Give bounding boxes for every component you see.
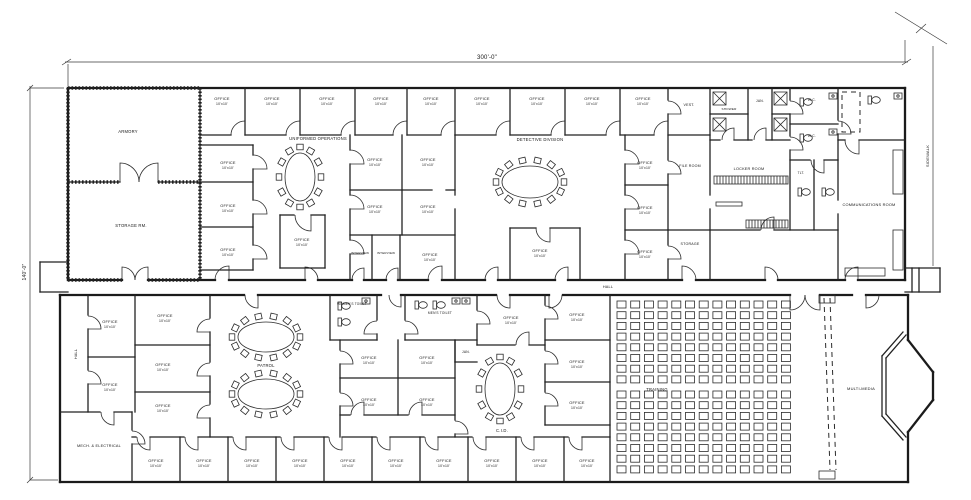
chair xyxy=(768,312,777,319)
chair xyxy=(557,168,565,176)
chair xyxy=(485,413,493,421)
chair xyxy=(644,391,653,398)
chair xyxy=(727,322,736,329)
chair xyxy=(617,322,626,329)
door-swing xyxy=(521,437,534,450)
door-swing xyxy=(441,121,455,135)
chair xyxy=(229,334,235,340)
chair xyxy=(658,322,667,329)
chair xyxy=(658,423,667,430)
chair xyxy=(713,322,722,329)
room-label-office: OFFICE xyxy=(532,458,548,463)
chair xyxy=(293,399,301,407)
chair xyxy=(781,391,790,398)
chair xyxy=(713,466,722,473)
chair xyxy=(644,376,653,383)
door-swing xyxy=(295,215,311,231)
chair xyxy=(699,312,708,319)
room-label-office: OFFICE xyxy=(419,355,435,360)
chair xyxy=(644,365,653,372)
chair xyxy=(713,344,722,351)
chair xyxy=(699,355,708,362)
chair xyxy=(241,316,249,324)
room-label: W.C. xyxy=(808,98,816,102)
chair xyxy=(754,312,763,319)
dimension-label: 140'-0" xyxy=(22,264,28,281)
chair xyxy=(644,333,653,340)
chair xyxy=(727,402,736,409)
chair xyxy=(781,455,790,462)
room-label-office: OFFICE xyxy=(584,96,600,101)
chair xyxy=(644,412,653,419)
chair xyxy=(699,423,708,430)
chair xyxy=(617,466,626,473)
door-swing xyxy=(790,295,805,310)
chair xyxy=(617,402,626,409)
door-swing xyxy=(606,121,620,135)
room-label: INTERVIEW xyxy=(377,251,395,255)
chair xyxy=(547,195,555,203)
chair xyxy=(699,376,708,383)
conference-table xyxy=(493,157,567,207)
chair xyxy=(727,455,736,462)
chair xyxy=(781,412,790,419)
room-label-office: OFFICE xyxy=(532,248,548,253)
room-size-label: 10'x10' xyxy=(571,318,583,322)
room-size-label: 10'x10' xyxy=(581,464,593,468)
chair xyxy=(699,412,708,419)
door-swing xyxy=(120,163,139,182)
chair xyxy=(478,401,486,409)
chair xyxy=(727,355,736,362)
chair xyxy=(672,455,681,462)
room-size-label: 10'x10' xyxy=(639,166,651,170)
chair xyxy=(781,402,790,409)
chair xyxy=(255,354,262,361)
chair xyxy=(768,434,777,441)
chair xyxy=(306,199,314,207)
chair xyxy=(768,365,777,372)
conference-table xyxy=(276,144,324,210)
chair xyxy=(686,402,695,409)
chair xyxy=(699,455,708,462)
door-swing xyxy=(122,267,135,280)
chair xyxy=(497,354,503,360)
chair xyxy=(768,412,777,419)
chair xyxy=(561,179,567,185)
chair xyxy=(686,355,695,362)
chair xyxy=(644,445,653,452)
door-swing xyxy=(341,121,355,135)
door-swing xyxy=(811,160,824,173)
chair xyxy=(514,369,522,377)
chair xyxy=(617,355,626,362)
door-swing xyxy=(197,363,210,376)
chair xyxy=(686,344,695,351)
room-label: FILE ROOM xyxy=(679,164,701,168)
chair xyxy=(617,301,626,308)
room-label: VEST. xyxy=(684,103,695,107)
chair xyxy=(514,401,522,409)
chair xyxy=(781,434,790,441)
room-size-label: 10'x10' xyxy=(422,210,434,214)
toilet xyxy=(415,301,427,309)
room-size-label: 10'x10' xyxy=(150,464,162,468)
chair xyxy=(699,402,708,409)
chair xyxy=(768,355,777,362)
room-label-office: OFFICE xyxy=(361,355,377,360)
dimension-label: 300'-0" xyxy=(477,55,497,61)
room-label: MECH. & ELECTRICAL xyxy=(77,444,121,448)
room-size-label: 10'x10' xyxy=(486,464,498,468)
sink xyxy=(829,93,837,99)
folding-partition xyxy=(824,298,830,470)
room-label-office: OFFICE xyxy=(148,458,164,463)
door-swing xyxy=(389,295,401,307)
door-swing xyxy=(845,267,858,280)
chair xyxy=(686,412,695,419)
door-swing xyxy=(545,306,558,319)
chair xyxy=(740,391,749,398)
room-label-office: OFFICE xyxy=(419,397,435,402)
door-swing xyxy=(845,140,859,154)
door-swing xyxy=(866,295,879,308)
chair xyxy=(672,333,681,340)
chair xyxy=(781,312,790,319)
toilet xyxy=(338,318,350,326)
chair xyxy=(644,423,653,430)
chair xyxy=(672,376,681,383)
equipment xyxy=(716,202,742,206)
room-label: COMMUNICATIONS ROOM xyxy=(842,202,895,207)
chair xyxy=(768,455,777,462)
chair xyxy=(713,455,722,462)
room-size-label: 10'x10' xyxy=(222,209,234,213)
chair xyxy=(293,381,301,389)
door-swing xyxy=(245,295,258,308)
room-size-label: 10'x10' xyxy=(104,388,116,392)
chair xyxy=(231,399,239,407)
room-size-label: 10'x10' xyxy=(375,102,387,106)
room-label-office: OFFICE xyxy=(292,458,308,463)
room-size-label: 10'x10' xyxy=(296,243,308,247)
chair xyxy=(241,349,249,357)
door-swing xyxy=(197,405,210,418)
chair xyxy=(478,369,486,377)
chair xyxy=(713,423,722,430)
room-label-office: OFFICE xyxy=(637,160,653,165)
room-size-label: 10'x10' xyxy=(159,319,171,323)
room-size-label: 10'x10' xyxy=(266,102,278,106)
room-label: JAN. xyxy=(756,99,764,103)
lockers xyxy=(746,220,788,228)
door-swing xyxy=(473,437,486,450)
room-label: TRAINING xyxy=(646,387,668,392)
room-size-label: 10'x10' xyxy=(363,403,375,407)
chair xyxy=(727,376,736,383)
sink xyxy=(452,298,460,304)
chair xyxy=(314,188,322,196)
chair xyxy=(754,402,763,409)
chair xyxy=(768,466,777,473)
chair xyxy=(740,355,749,362)
room-label: UNIFORMED OPERATIONS xyxy=(289,136,347,141)
room-label-office: OFFICE xyxy=(102,382,118,387)
room-size-label: 10'x10' xyxy=(531,102,543,106)
chair xyxy=(686,445,695,452)
door-swing xyxy=(329,437,342,450)
room-label-office: OFFICE xyxy=(196,458,212,463)
chair xyxy=(255,313,262,320)
chair xyxy=(476,386,482,392)
chair xyxy=(547,161,555,169)
room-label-office: OFFICE xyxy=(474,96,490,101)
room-label-office: OFFICE xyxy=(569,312,585,317)
chair-rows xyxy=(617,391,790,473)
chair xyxy=(727,344,736,351)
chair xyxy=(644,312,653,319)
chair xyxy=(644,402,653,409)
room-size-label: 10'x10' xyxy=(157,409,169,413)
chair xyxy=(740,423,749,430)
chair xyxy=(686,322,695,329)
chair xyxy=(644,434,653,441)
chair xyxy=(506,357,514,365)
chair xyxy=(644,455,653,462)
chair xyxy=(699,391,708,398)
chair xyxy=(781,423,790,430)
chair xyxy=(754,434,763,441)
room-size-label: 10'x10' xyxy=(637,102,649,106)
door-swing xyxy=(455,421,468,434)
shower-stall xyxy=(713,92,726,105)
chair xyxy=(740,455,749,462)
room-label-office: OFFICE xyxy=(484,458,500,463)
door-swing xyxy=(496,121,510,135)
chair xyxy=(270,411,277,418)
chair xyxy=(617,312,626,319)
room-size-label: 10'x10' xyxy=(369,163,381,167)
room-size-label: 10'x10' xyxy=(222,166,234,170)
door-swing xyxy=(350,150,364,164)
chair xyxy=(644,301,653,308)
chair xyxy=(713,365,722,372)
chair xyxy=(740,376,749,383)
chair xyxy=(283,316,291,324)
door-swing xyxy=(386,268,398,280)
chair xyxy=(658,391,667,398)
chair xyxy=(768,333,777,340)
room-label-office: OFFICE xyxy=(637,205,653,210)
chair xyxy=(768,423,777,430)
chair xyxy=(631,434,640,441)
room-label: STORAGE RM. xyxy=(115,223,146,228)
toilet xyxy=(433,301,445,309)
chair xyxy=(740,445,749,452)
room-size-label: 10'x10' xyxy=(369,210,381,214)
chair xyxy=(686,434,695,441)
chair xyxy=(686,391,695,398)
room-size-label: 10'x10' xyxy=(639,211,651,215)
room-label: PATROL xyxy=(257,363,275,368)
chair xyxy=(727,312,736,319)
chair xyxy=(658,455,667,462)
chair xyxy=(672,434,681,441)
room-label: STORAGE xyxy=(681,242,700,246)
chair xyxy=(672,423,681,430)
chair xyxy=(631,365,640,372)
chair xyxy=(672,391,681,398)
room-size-label: 10'x10' xyxy=(422,163,434,167)
chair xyxy=(686,333,695,340)
room-size-label: 10'x10' xyxy=(246,464,258,468)
chair-rows xyxy=(617,301,790,383)
door-swing xyxy=(722,128,734,140)
chair xyxy=(727,423,736,430)
room-label-office: OFFICE xyxy=(361,397,377,402)
chair xyxy=(713,355,722,362)
wall xyxy=(886,414,906,437)
chair xyxy=(713,434,722,441)
door-swing xyxy=(754,128,766,140)
room-size-label: 10'x10' xyxy=(222,253,234,257)
room-label-office: OFFICE xyxy=(319,96,335,101)
room-label: MULTI-MEDIA xyxy=(847,386,875,391)
chair xyxy=(754,355,763,362)
room-label: HALL xyxy=(603,285,613,289)
room-label-office: OFFICE xyxy=(294,237,310,242)
chair xyxy=(672,312,681,319)
chair xyxy=(768,402,777,409)
room-size-label: 10'x10' xyxy=(198,464,210,468)
folding-partition xyxy=(830,298,836,470)
chair xyxy=(713,376,722,383)
chair xyxy=(283,349,291,357)
room-label-office: OFFICE xyxy=(388,458,404,463)
door-swing xyxy=(231,121,245,135)
room-label-office: OFFICE xyxy=(340,458,356,463)
chair xyxy=(231,381,239,389)
chair xyxy=(297,334,303,340)
chair xyxy=(686,301,695,308)
chair xyxy=(658,434,667,441)
room-label-office: OFFICE xyxy=(155,403,171,408)
chair xyxy=(283,373,291,381)
door-swing xyxy=(215,266,229,280)
chair xyxy=(768,322,777,329)
wall xyxy=(908,340,933,372)
room-label-office: OFFICE xyxy=(420,157,436,162)
door-swing xyxy=(377,437,390,450)
chair xyxy=(631,376,640,383)
room-size-label: 10'x10' xyxy=(505,321,517,325)
room-size-label: 10'x10' xyxy=(421,361,433,365)
chair xyxy=(768,391,777,398)
chair xyxy=(631,445,640,452)
room-label-office: OFFICE xyxy=(102,319,118,324)
room-label: LOCKER ROOM xyxy=(734,167,765,171)
door-swing xyxy=(340,351,353,364)
chair xyxy=(241,373,249,381)
chair xyxy=(781,376,790,383)
chair xyxy=(740,301,749,308)
chair xyxy=(727,333,736,340)
room-size-label: 10'x10' xyxy=(363,361,375,365)
chair xyxy=(231,324,239,332)
chair xyxy=(713,333,722,340)
door-swing xyxy=(101,412,114,425)
chair xyxy=(617,423,626,430)
door-swing xyxy=(253,200,267,214)
door-swing xyxy=(139,163,158,182)
room-label-office: OFFICE xyxy=(503,315,519,320)
chair xyxy=(306,147,314,155)
room-label-office: OFFICE xyxy=(569,400,585,405)
room-label: ARMORY xyxy=(118,129,138,134)
chair xyxy=(754,391,763,398)
chair xyxy=(658,365,667,372)
chair xyxy=(754,455,763,462)
room-label: SHOWER xyxy=(721,107,737,111)
chair xyxy=(699,466,708,473)
shower-stall xyxy=(774,118,787,131)
door-swing xyxy=(790,101,803,114)
door-swing xyxy=(281,437,294,450)
chair xyxy=(255,411,262,418)
chair xyxy=(617,333,626,340)
door-swing xyxy=(654,121,668,135)
chair xyxy=(699,301,708,308)
room-size-label: 10'x10' xyxy=(390,464,402,468)
chair xyxy=(631,466,640,473)
chair xyxy=(658,412,667,419)
chair xyxy=(781,301,790,308)
chair xyxy=(754,423,763,430)
chair xyxy=(658,445,667,452)
door-swing xyxy=(364,321,377,334)
equipment xyxy=(819,295,835,303)
door-swing xyxy=(516,332,529,345)
door-swing xyxy=(428,266,442,280)
chair xyxy=(297,204,303,210)
chair xyxy=(644,322,653,329)
chair xyxy=(699,445,708,452)
room-size-label: 10'x10' xyxy=(571,365,583,369)
chair xyxy=(740,322,749,329)
door-swing xyxy=(137,437,150,450)
chair xyxy=(276,174,282,180)
chair xyxy=(617,445,626,452)
door-swing xyxy=(185,437,198,450)
chair xyxy=(686,466,695,473)
room-label-office: OFFICE xyxy=(422,252,438,257)
door-swing xyxy=(497,295,510,308)
room-label: HALL xyxy=(74,349,78,359)
room-size-label: 10'x10' xyxy=(157,368,169,372)
chair xyxy=(672,365,681,372)
room-label: C.I.D. xyxy=(496,428,508,433)
door-swing xyxy=(286,121,300,135)
chair xyxy=(631,355,640,362)
chair xyxy=(617,412,626,419)
chair xyxy=(672,355,681,362)
chair xyxy=(534,157,541,164)
chair xyxy=(713,412,722,419)
dimension-line xyxy=(895,12,947,44)
chair xyxy=(255,370,262,377)
chair xyxy=(727,434,736,441)
room-label: INTERVIEW xyxy=(351,251,369,255)
